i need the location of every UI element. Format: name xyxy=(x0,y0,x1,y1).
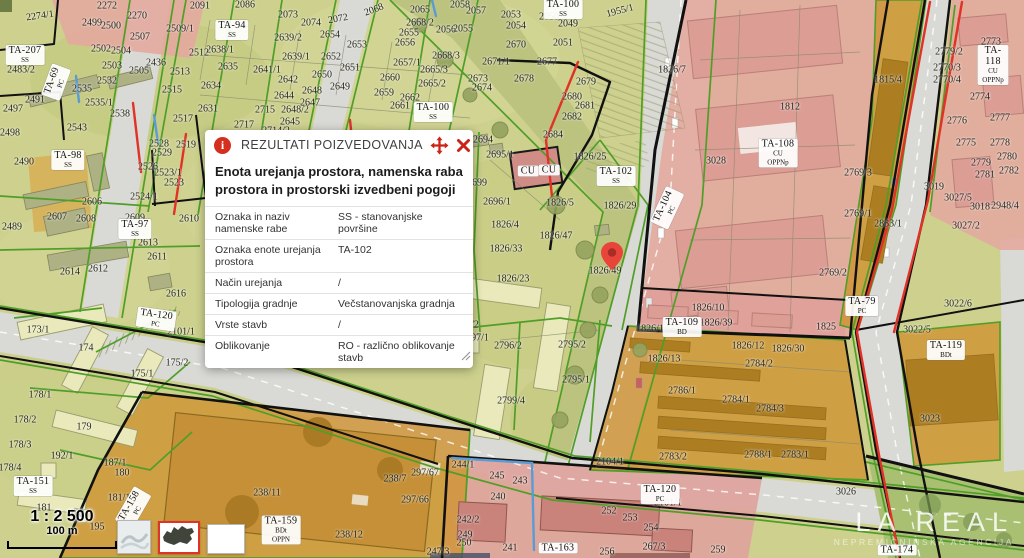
map-canvas[interactable]: 2274/122722270209120862499250025072509/1… xyxy=(0,0,1024,558)
row-value: TA-102 xyxy=(338,244,463,256)
result-row: Oznaka in naziv namenske rabeSS - stanov… xyxy=(205,206,473,239)
pin-icon xyxy=(601,242,623,270)
scale-ratio: 1 : 2 500 xyxy=(6,509,118,525)
row-value: RO - različno oblikovanje stavb xyxy=(338,340,463,364)
scale-indicator: 1 : 2 500 100 m xyxy=(6,509,118,555)
map-pin xyxy=(601,242,623,270)
result-row: Način urejanja/ xyxy=(205,272,473,293)
popup-title: REZULTATI POIZVEDOVANJA xyxy=(241,138,423,152)
move-icon[interactable] xyxy=(430,136,449,155)
scale-distance: 100 m xyxy=(6,525,118,537)
popup-rows: Oznaka in naziv namenske rabeSS - stanov… xyxy=(205,206,473,368)
basemap-thumbnail-slovenia[interactable] xyxy=(158,521,200,554)
popup-heading: Enota urejanja prostora, namenska raba p… xyxy=(205,160,473,206)
result-row: Tipologija gradnjeVečstanovanjska gradnj… xyxy=(205,293,473,314)
result-row: Vrste stavb/ xyxy=(205,314,473,335)
resize-handle-icon[interactable] xyxy=(461,348,471,366)
basemap-thumbnail-blank[interactable] xyxy=(207,524,245,554)
close-icon[interactable] xyxy=(456,138,471,153)
basemap-preview-icon xyxy=(118,521,150,553)
result-row: Oznaka enote urejanja prostoraTA-102 xyxy=(205,239,473,272)
row-value: / xyxy=(338,277,463,289)
row-label: Oznaka enote urejanja prostora xyxy=(215,244,338,268)
row-value: Večstanovanjska gradnja xyxy=(338,298,463,310)
popup-header: i REZULTATI POIZVEDOVANJA xyxy=(205,130,473,160)
row-label: Oblikovanje xyxy=(215,340,338,352)
result-row: OblikovanjeRO - različno oblikovanje sta… xyxy=(205,335,473,368)
basemap-thumbnail-preview[interactable] xyxy=(117,520,151,554)
row-value: SS - stanovanjske površine xyxy=(338,211,463,235)
row-value: / xyxy=(338,319,463,331)
slovenia-outline-icon xyxy=(160,523,196,549)
row-label: Oznaka in naziv namenske rabe xyxy=(215,211,338,235)
basemap-switcher xyxy=(117,520,245,554)
scale-bar xyxy=(7,540,117,550)
row-label: Tipologija gradnje xyxy=(215,298,338,310)
query-results-popup: i REZULTATI POIZVEDOVANJA Enota urejanja… xyxy=(205,130,473,368)
row-label: Način urejanja xyxy=(215,277,338,289)
map-artwork xyxy=(0,0,1024,558)
row-label: Vrste stavb xyxy=(215,319,338,331)
info-circle-icon: i xyxy=(214,137,231,154)
